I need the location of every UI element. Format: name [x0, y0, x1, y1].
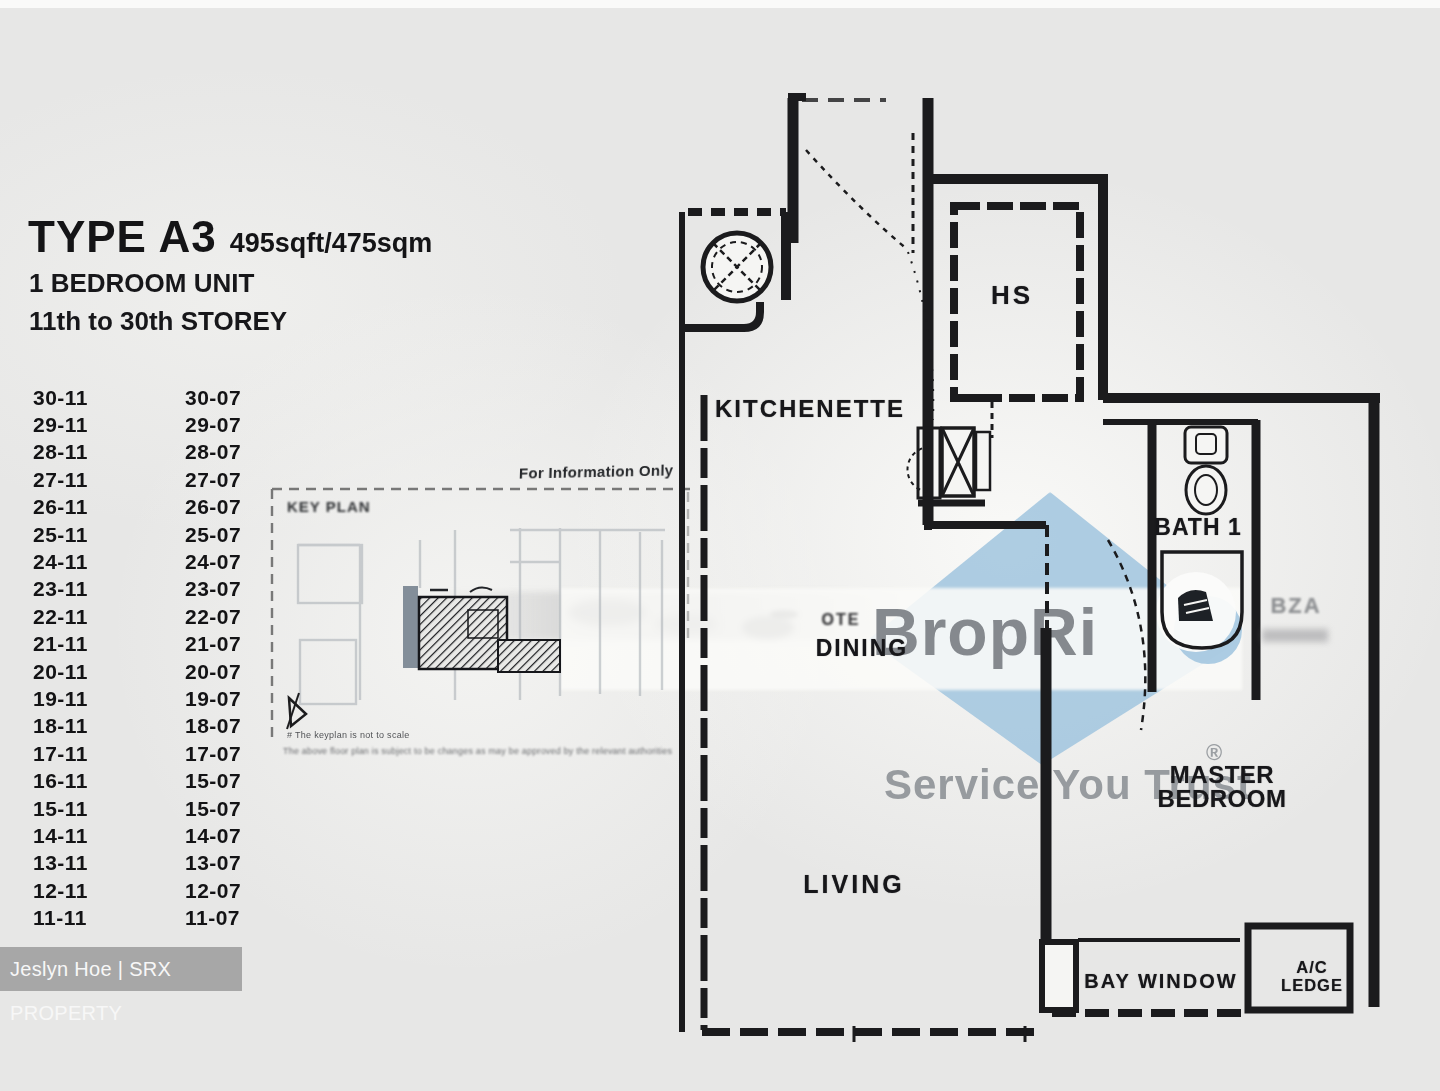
room-label-living: LIVING [803, 870, 904, 899]
title-block: TYPE A3 495sqft/475sqm [28, 212, 432, 262]
unit-stack-row: 23-11 23-07 [33, 576, 241, 603]
plan-walls [682, 97, 1380, 1042]
unit-stack-row: 12-11 12-07 [33, 877, 241, 904]
unit-number-left: 27-11 [33, 468, 185, 492]
unit-stack-row: 20-11 20-07 [33, 658, 241, 685]
room-label-bath1: BATH 1 [1154, 514, 1241, 541]
bath-door-swing-arc [1108, 540, 1145, 730]
unit-stack-row: 13-11 13-07 [33, 850, 241, 877]
unit-stack-row: 18-11 18-07 [33, 713, 241, 740]
cooktop-icon [703, 233, 771, 301]
ghost-scan-text: BZA [1270, 593, 1321, 619]
unit-number-right: 15-07 [185, 769, 241, 793]
room-label-dining: DINING [816, 635, 909, 662]
unit-stack-row: 28-11 28-07 [33, 439, 241, 466]
unit-number-left: 22-11 [33, 605, 185, 629]
unit-number-right: 28-07 [185, 440, 241, 464]
unit-number-right: 20-07 [185, 660, 241, 684]
unit-number-left: 11-11 [33, 906, 185, 930]
info-only-note: For Information Only [519, 461, 674, 481]
key-plan-unit-marker [403, 586, 418, 668]
unit-stack-row: 16-11 15-07 [33, 767, 241, 794]
unit-number-left: 17-11 [33, 742, 185, 766]
ac-ledge-line2: LEDGE [1281, 976, 1343, 994]
unit-stack-row: 11-11 11-07 [33, 904, 241, 931]
key-plan-sketch [272, 489, 690, 744]
unit-type-description: 1 BEDROOM UNIT [29, 268, 254, 299]
unit-number-right: 11-07 [185, 906, 240, 930]
unit-number-right: 29-07 [185, 413, 241, 437]
room-label-kitchenette: KITCHENETTE [715, 395, 905, 423]
room-label-ac-ledge: A/C LEDGE [1281, 958, 1343, 994]
unit-number-right: 18-07 [185, 714, 241, 738]
room-label-master-bedroom: MASTER BEDROOM [1158, 763, 1287, 811]
unit-stack-row: 27-11 27-07 [33, 466, 241, 493]
unit-number-right: 13-07 [185, 851, 241, 875]
unit-number-right: 22-07 [185, 605, 241, 629]
ac-ledge-line1: A/C [1281, 958, 1343, 976]
master-bedroom-line1: MASTER [1158, 763, 1287, 787]
toilet-icon [1185, 427, 1227, 514]
unit-number-right: 27-07 [185, 468, 241, 492]
unit-stack-row: 30-11 30-07 [33, 384, 241, 411]
unit-number-left: 24-11 [33, 550, 185, 574]
key-plan-disclaimer-1: # The keyplan is not to scale [287, 730, 410, 740]
room-label-household-shelter: HS [991, 280, 1033, 311]
unit-number-left: 12-11 [33, 879, 185, 903]
unit-stack-row: 29-11 29-07 [33, 411, 241, 438]
unit-stack-row: 24-11 24-07 [33, 548, 241, 575]
unit-number-right: 24-07 [185, 550, 241, 574]
duct-riser-icon [908, 428, 990, 498]
unit-number-right: 25-07 [185, 523, 241, 547]
unit-number-left: 28-11 [33, 440, 185, 464]
unit-number-left: 15-11 [33, 797, 185, 821]
unit-number-right: 12-07 [185, 879, 241, 903]
unit-stack-row: 25-11 25-07 [33, 521, 241, 548]
unit-number-left: 25-11 [33, 523, 185, 547]
storey-range: 11th to 30th STOREY [29, 306, 287, 337]
unit-number-right: 19-07 [185, 687, 241, 711]
master-bedroom-line2: BEDROOM [1158, 787, 1287, 811]
entry-door-swing-arc [806, 150, 908, 250]
unit-number-left: 16-11 [33, 769, 185, 793]
unit-number-right: 17-07 [185, 742, 241, 766]
unit-number-right: 26-07 [185, 495, 241, 519]
key-plan-title: KEY PLAN [287, 498, 371, 515]
unit-stack-row: 26-11 26-07 [33, 494, 241, 521]
room-label-dining-ghost: OTE [822, 611, 861, 629]
unit-number-right: 30-07 [185, 386, 241, 410]
unit-number-left: 20-11 [33, 660, 185, 684]
unit-type-code: TYPE A3 [28, 212, 217, 262]
unit-number-left: 29-11 [33, 413, 185, 437]
key-plan-disclaimer-2: The above floor plan is subject to be ch… [283, 746, 672, 756]
unit-number-left: 21-11 [33, 632, 185, 656]
unit-number-left: 26-11 [33, 495, 185, 519]
unit-number-left: 18-11 [33, 714, 185, 738]
north-arrow-icon [287, 693, 306, 729]
unit-number-left: 19-11 [33, 687, 185, 711]
unit-number-right: 21-07 [185, 632, 241, 656]
unit-stack-row: 17-11 17-07 [33, 740, 241, 767]
unit-number-right: 14-07 [185, 824, 241, 848]
unit-number-left: 13-11 [33, 851, 185, 875]
bay-column [1042, 942, 1076, 1010]
unit-number-right: 23-07 [185, 577, 241, 601]
floor-plan-page: { "header": { "type_label": "TYPE A3", "… [0, 0, 1440, 1091]
unit-stack-row: 22-11 22-07 [33, 603, 241, 630]
scan-smudge [1262, 629, 1328, 642]
unit-number-left: 14-11 [33, 824, 185, 848]
unit-stack-row: 19-11 19-07 [33, 685, 241, 712]
agent-badge: Jeslyn Hoe | SRX PROPERTY [0, 947, 242, 991]
unit-stack-row: 14-11 14-07 [33, 822, 241, 849]
unit-area: 495sqft/475sqm [230, 228, 433, 259]
unit-number-left: 23-11 [33, 577, 185, 601]
room-label-bay-window: BAY WINDOW [1084, 970, 1237, 993]
unit-number-left: 30-11 [33, 386, 185, 410]
unit-number-right: 15-07 [185, 797, 241, 821]
unit-stack-row: 21-11 21-07 [33, 631, 241, 658]
unit-stack-row: 15-11 15-07 [33, 795, 241, 822]
unit-stack-list: 30-11 30-07 29-11 29-07 28-11 28-07 27-1… [33, 384, 241, 932]
